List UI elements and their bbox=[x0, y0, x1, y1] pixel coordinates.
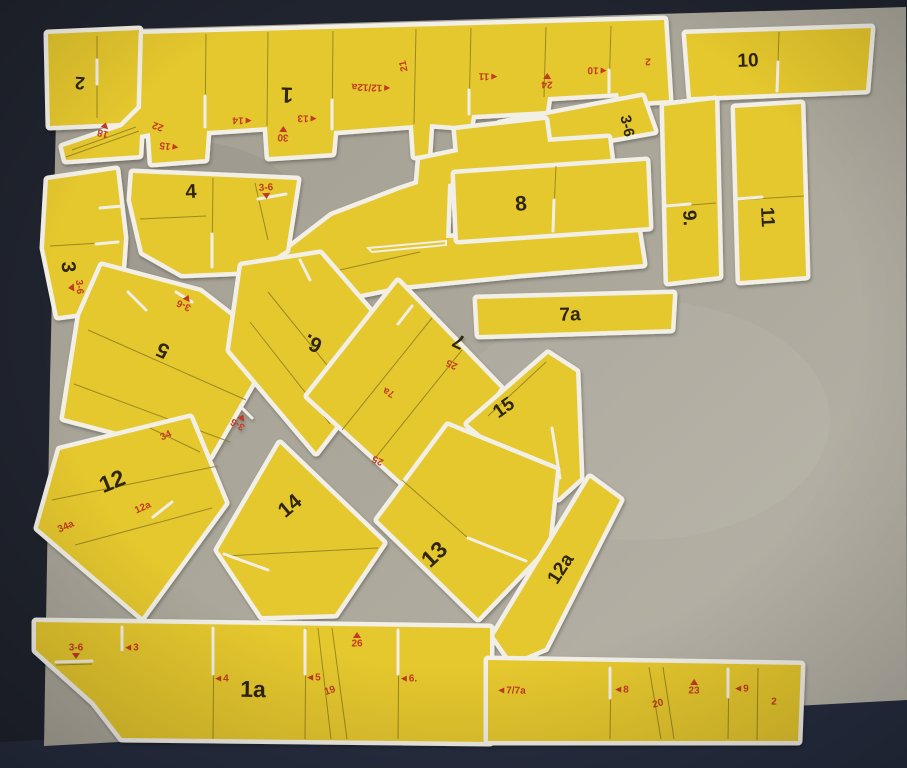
photo-vignette bbox=[0, 0, 907, 768]
photo-canvas: Photograph of a paper model kit: yellow … bbox=[0, 0, 907, 768]
photo-of-model-parts: Photograph of a paper model kit: yellow … bbox=[0, 0, 907, 768]
